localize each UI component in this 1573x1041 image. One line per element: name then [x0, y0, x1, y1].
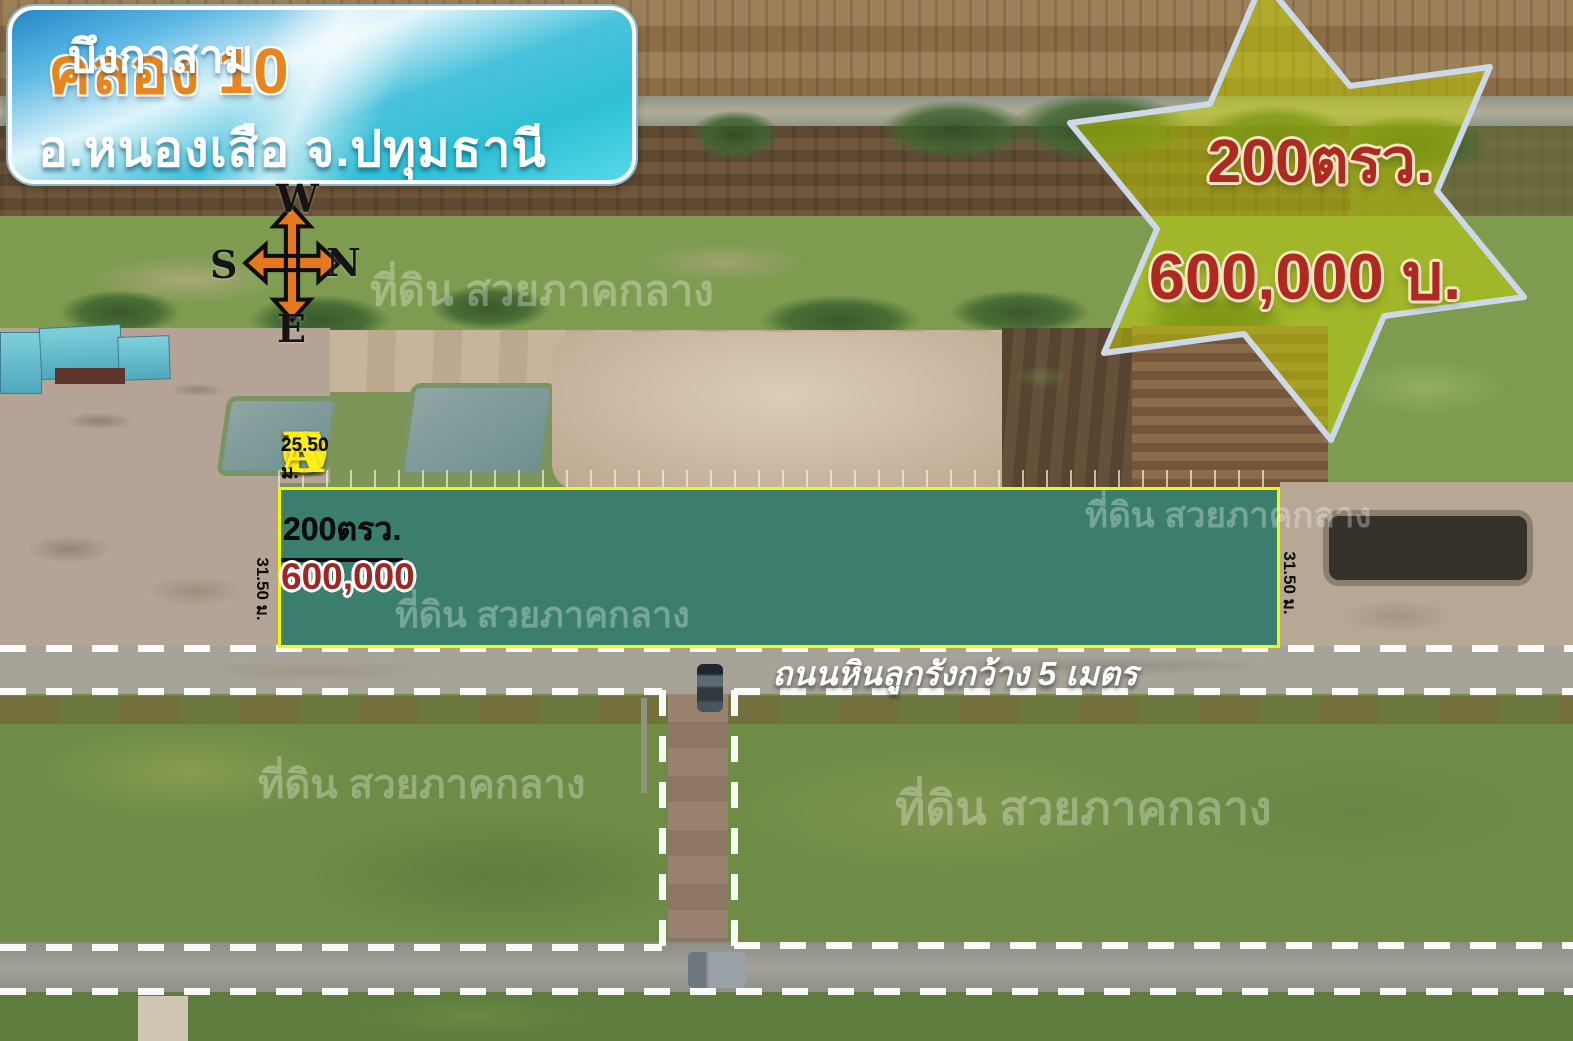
roadside-ditch	[0, 696, 1573, 724]
sandy-cleared-area	[552, 332, 1017, 490]
access-road-dashed-line	[659, 690, 666, 950]
compass-south-label: S	[210, 242, 237, 287]
road-dashed-line	[0, 944, 662, 951]
plot-depth-label-left: 31.50 ม.	[254, 529, 276, 649]
bottom-grass	[0, 992, 1573, 1041]
compass-north-label: N	[326, 240, 361, 285]
farm-building	[117, 335, 171, 381]
star-price-text: 600,000 บ.	[1075, 224, 1535, 328]
banner-title-rest: บึงกาสาม	[68, 20, 253, 92]
compass-west-label: W	[276, 176, 319, 221]
road-dashed-line	[0, 988, 1573, 995]
banner-subtitle: อ.หนองเสือ จ.ปทุมธานี	[38, 110, 628, 184]
access-road-dashed-line	[731, 690, 738, 950]
watermark: ที่ดิน สวยภาคกลาง	[370, 258, 714, 324]
gravel-area-left	[0, 482, 278, 650]
concrete-path	[138, 996, 188, 1041]
watermark: ที่ดิน สวยภาคกลาง	[1085, 488, 1372, 543]
fish-pond	[398, 383, 556, 477]
lower-grass-field	[0, 694, 1573, 954]
watermark: ที่ดิน สวยภาคกลาง	[895, 772, 1272, 845]
road-dashed-line	[734, 942, 1573, 949]
tree-cluster	[690, 110, 780, 160]
tree-cluster	[880, 100, 1030, 160]
road-name-label: ถนนหินลูกรังกว้าง 5 เมตร	[720, 647, 1190, 700]
road-dashed-line	[0, 688, 662, 695]
fence-row	[278, 470, 1280, 488]
utility-pole	[641, 698, 647, 793]
watermark: ที่ดิน สวยภาคกลาง	[258, 752, 585, 816]
farm-building-shadow	[55, 368, 125, 384]
access-road	[668, 694, 728, 954]
watermark: ที่ดิน สวยภาคกลาง	[395, 586, 690, 643]
land-sale-flyer: F 200ตรว. 600,000 25.50 ม. E 200ตรว. 600…	[0, 0, 1573, 1041]
star-area-text: 200ตรว.	[1150, 112, 1490, 209]
compass-east-label: E	[277, 306, 306, 351]
farm-building	[0, 332, 42, 394]
pickup-truck	[688, 952, 746, 988]
title-banner: คลอง 10 บึงกาสาม อ.หนองเสือ จ.ปทุมธานี	[8, 6, 636, 184]
